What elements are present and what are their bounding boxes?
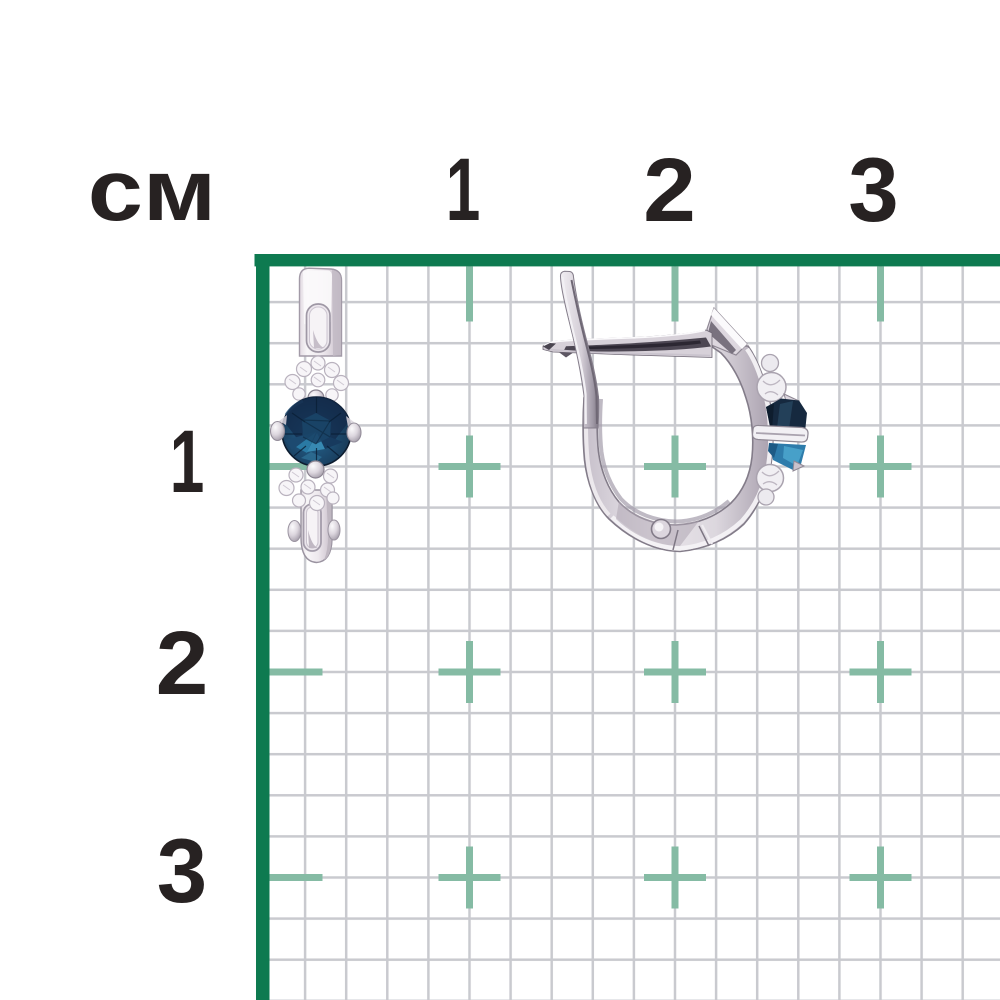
svg-text:3: 3 (848, 140, 898, 241)
svg-text:2: 2 (643, 139, 696, 240)
svg-text:см: см (88, 142, 216, 239)
svg-text:2: 2 (156, 612, 209, 713)
svg-text:1: 1 (446, 140, 481, 240)
svg-text:3: 3 (157, 821, 207, 922)
svg-text:1: 1 (170, 412, 205, 512)
